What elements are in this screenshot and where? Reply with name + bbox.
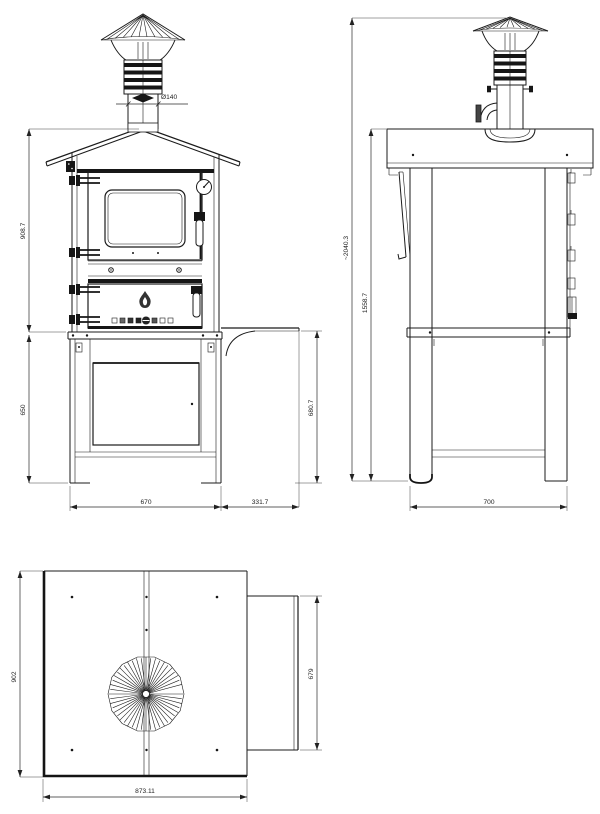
dim-label-body-width: 670	[140, 499, 151, 506]
front-view: Ø140	[20, 14, 322, 511]
dim-plan-depth: 902	[11, 571, 43, 777]
dim-plan-width: 873.11	[43, 779, 247, 802]
dim-label-plan-depth: 902	[11, 671, 18, 682]
side-hinge-hardware	[568, 169, 577, 319]
base-band	[68, 332, 222, 339]
technical-drawing: Ø140	[0, 0, 600, 814]
center-seam	[144, 571, 149, 776]
chimney-brush-icon	[108, 657, 184, 731]
chimney-cap-icon	[473, 17, 548, 85]
dim-stand-height: 650	[20, 335, 68, 483]
top-view: 902 873.11 679	[11, 571, 322, 802]
dim-label-shelf-width: 331.7	[252, 499, 269, 506]
damper-pin-icon	[529, 86, 533, 93]
hinge-icon	[69, 314, 100, 325]
dim-label-worktop-height: 1558.7	[362, 293, 369, 314]
dim-label-stand-height: 650	[20, 404, 27, 415]
dim-label-body-height: 908.7	[20, 222, 27, 239]
oven-door-upper	[88, 172, 212, 260]
hinge-icon	[69, 247, 100, 258]
side-view: ~2040.3 1558.7 700	[343, 17, 593, 511]
dim-label-plan-shelf-depth: 679	[308, 668, 315, 679]
stand	[70, 339, 221, 483]
side-handle-icon	[568, 297, 577, 319]
hinge-icon	[69, 175, 100, 186]
dim-shelf-width: 331.7	[221, 499, 299, 507]
flue-elbow-icon	[476, 103, 497, 122]
pipe-boot	[485, 129, 535, 142]
leg-foot	[410, 474, 432, 483]
dim-depth: 700	[410, 486, 567, 511]
tabletop-outline	[43, 571, 247, 777]
roof	[46, 123, 240, 166]
dim-body-width: 670	[70, 486, 221, 511]
dim-label-overall-height: ~2040.3	[343, 236, 350, 260]
dim-plan-shelf-depth: 679	[300, 596, 322, 750]
door-handle-upper	[194, 212, 205, 246]
dim-label-shelf-height: 680.7	[308, 399, 315, 416]
side-shelf	[221, 328, 299, 507]
wall-bracket-icon	[66, 161, 75, 172]
worktop	[387, 129, 593, 175]
mid-band	[88, 261, 202, 283]
thermometer-gauge-icon	[197, 180, 212, 195]
door-window	[105, 190, 185, 247]
damper-handle-icon	[132, 94, 154, 103]
dim-label-plan-width: 873.11	[135, 788, 155, 795]
door-handle-lower	[191, 286, 202, 317]
hinge-icons	[69, 175, 100, 325]
flame-logo-icon	[139, 291, 150, 308]
shelf-outline	[247, 596, 298, 750]
firebox-door	[88, 284, 202, 329]
cabinet-door	[93, 363, 199, 445]
dim-worktop-height: 1558.7	[362, 129, 386, 481]
dim-label-depth: 700	[483, 499, 494, 506]
dim-chimney-diameter: Ø140	[116, 94, 188, 107]
dim-overall-height: ~2040.3	[343, 18, 506, 481]
dim-label-chimney-diameter: Ø140	[161, 94, 177, 101]
hinge-icon	[69, 284, 100, 295]
folded-shelf	[398, 172, 410, 259]
dim-body-height: 908.7	[20, 129, 139, 332]
damper-pin-icon	[487, 86, 491, 93]
air-vent-slider	[112, 317, 173, 325]
frame-legs	[407, 168, 570, 483]
drawing-sheet: Ø140	[0, 0, 600, 814]
screw-dots	[71, 596, 219, 752]
